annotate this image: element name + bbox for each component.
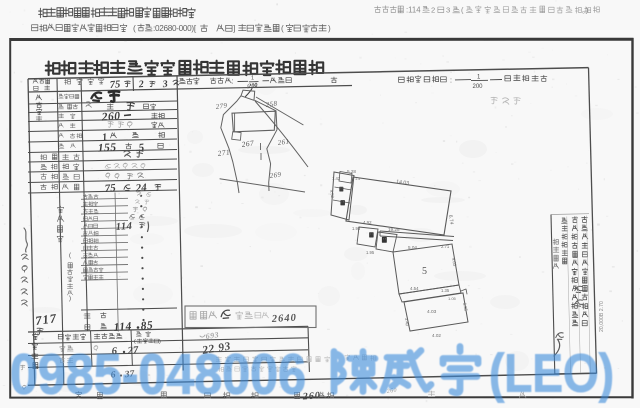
svg-text:0985-048006: 0985-048006 — [10, 343, 306, 406]
svg-text:(LEO): (LEO) — [489, 344, 614, 404]
